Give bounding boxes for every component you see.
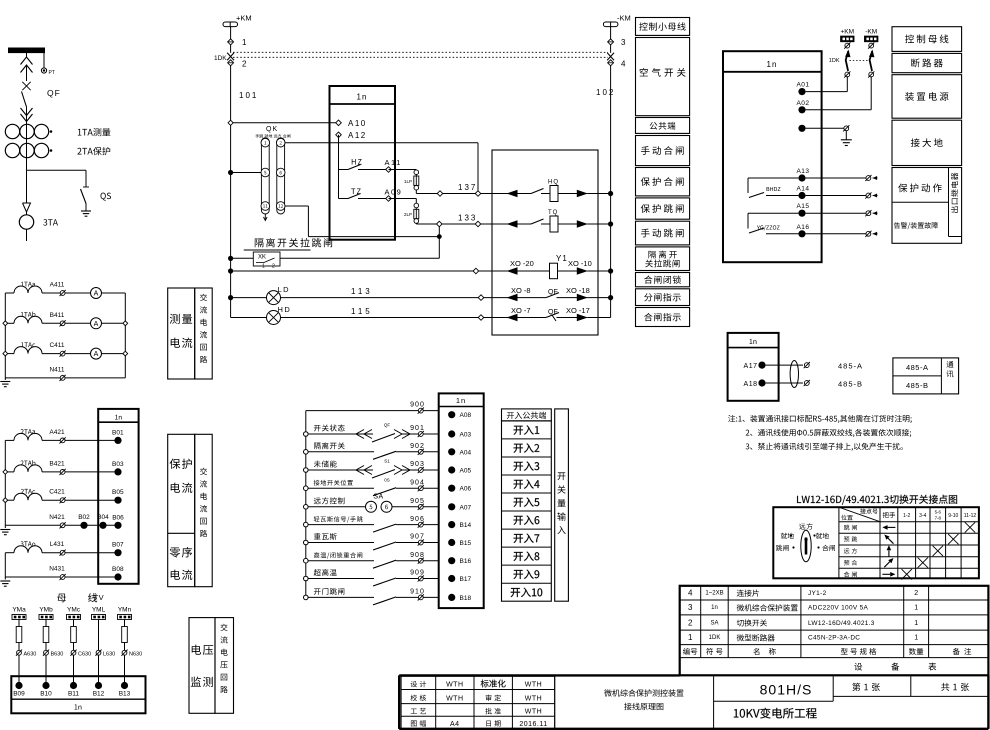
svg-text:907: 907 [410,534,425,541]
svg-text:XO -7: XO -7 [511,306,531,315]
svg-text:N630: N630 [129,652,142,658]
svg-text:1DK: 1DK [829,58,840,64]
svg-text:WTH: WTH [525,709,542,716]
svg-text:A18: A18 [744,381,758,388]
svg-text:QF: QF [548,309,558,316]
svg-text:Y1: Y1 [556,254,568,263]
svg-text:N431: N431 [49,566,65,573]
svg-text:2: 2 [688,618,693,627]
svg-text:SA: SA [710,620,718,626]
svg-text:A15: A15 [796,203,809,210]
svg-text:A14: A14 [796,186,809,193]
svg-text:A02: A02 [796,100,809,107]
svg-text:0S: 0S [384,478,390,483]
svg-text:B13: B13 [119,691,131,698]
svg-text:113: 113 [351,287,373,296]
svg-text:YML: YML [92,607,106,614]
svg-text:903: 903 [410,461,425,468]
svg-text:A05: A05 [460,468,472,475]
svg-text:2LP: 2LP [404,212,412,217]
svg-text:QF: QF [384,423,391,428]
svg-text:B17: B17 [460,576,472,583]
svg-text:3: 3 [621,38,626,47]
svg-text:B11: B11 [68,691,79,698]
svg-text:904: 904 [410,479,425,486]
svg-text:A411: A411 [50,282,65,289]
svg-text:485-B: 485-B [838,380,863,389]
svg-text:B04: B04 [97,514,109,521]
svg-text:N411: N411 [49,366,64,373]
svg-text:B15: B15 [460,540,472,547]
svg-text:1: 1 [688,633,693,642]
svg-text:1~2XB: 1~2XB [705,591,723,597]
svg-text:XO -10: XO -10 [568,259,592,268]
svg-text:+KM: +KM [841,29,855,36]
svg-text:QK: QK [266,126,278,133]
svg-text:115: 115 [351,307,373,316]
svg-text:A630: A630 [24,652,37,658]
svg-text:3: 3 [688,603,693,612]
svg-text:LW12-16D/49.4021.3: LW12-16D/49.4021.3 [808,620,875,627]
svg-text:PT: PT [49,70,55,76]
svg-text:1n: 1n [357,93,368,102]
svg-text:C630: C630 [78,652,91,658]
svg-text:902: 902 [410,443,425,450]
svg-text:A13: A13 [796,168,809,175]
svg-text:XO -18: XO -18 [566,286,590,295]
svg-text:B01: B01 [112,429,124,436]
svg-text:1: 1 [914,620,918,627]
svg-text:TV: TV [94,593,105,602]
svg-text:A03: A03 [460,432,472,439]
svg-text:485-A: 485-A [838,362,863,371]
svg-text:WTH: WTH [446,682,463,689]
svg-text:9-10: 9-10 [948,513,958,519]
svg-text:A: A [94,321,99,328]
svg-text:485-A: 485-A [906,363,929,372]
svg-text:JY1-2: JY1-2 [808,590,827,597]
svg-text:N421: N421 [49,514,65,521]
svg-text:7-8: 7-8 [935,516,942,521]
svg-text:HD: HD [278,305,292,314]
svg-text:1n: 1n [711,605,718,611]
svg-text:1: 1 [914,635,918,642]
svg-text:A11: A11 [385,158,402,167]
svg-text:2: 2 [914,590,918,597]
svg-text:B02: B02 [78,514,90,521]
svg-text:133: 133 [458,214,477,223]
svg-text:A421: A421 [49,429,65,436]
svg-text:A06: A06 [460,486,472,493]
svg-text:3-4: 3-4 [919,513,926,519]
svg-text:B06: B06 [112,515,124,522]
svg-text:YMn: YMn [118,607,132,614]
svg-text:QF: QF [548,289,558,296]
svg-text:102: 102 [596,88,615,97]
svg-text:XO -20: XO -20 [510,259,534,268]
svg-text:909: 909 [410,570,425,577]
svg-text:1DK: 1DK [709,635,721,641]
svg-text:ADC220V 100V 5A: ADC220V 100V 5A [808,605,869,612]
svg-text:11-12: 11-12 [964,513,977,519]
svg-text:1n: 1n [767,60,778,69]
svg-text:XO -8: XO -8 [511,286,531,295]
svg-text:XK: XK [258,255,266,261]
svg-text:101: 101 [239,91,258,100]
svg-text:YMa: YMa [12,607,26,614]
svg-text:B18: B18 [460,595,472,602]
svg-text:A4: A4 [450,721,460,728]
svg-text:B630: B630 [51,652,64,658]
svg-text:900: 900 [410,402,425,409]
svg-text:1: 1 [262,264,265,270]
svg-text:TQ: TQ [548,210,558,216]
svg-text:WTH: WTH [525,696,542,703]
svg-text:WTH: WTH [525,682,542,689]
svg-text:1: 1 [242,38,247,47]
svg-text:1LP: 1LP [404,179,412,184]
svg-text:C411: C411 [49,342,64,349]
svg-text:L431: L431 [50,541,65,548]
svg-text:SA: SA [373,493,383,500]
svg-text:5-6: 5-6 [935,510,942,515]
svg-text:XO -17: XO -17 [566,306,590,315]
svg-text:A12: A12 [348,131,367,140]
svg-text:B08: B08 [112,566,124,573]
svg-text:C421: C421 [49,489,65,496]
svg-text:B14: B14 [460,522,472,529]
svg-text:B421: B421 [49,460,65,467]
svg-text:905: 905 [410,498,425,505]
svg-text:-KM: -KM [617,14,631,23]
svg-text:906: 906 [410,516,425,523]
svg-text:LD: LD [278,285,291,294]
svg-text:HQ: HQ [548,180,559,186]
svg-text:1-2: 1-2 [903,513,910,519]
svg-text:801H/S: 801H/S [760,682,813,698]
svg-text:A07: A07 [460,504,472,511]
svg-text:2: 2 [242,60,247,69]
svg-text:YMc: YMc [67,607,81,614]
svg-text:1n: 1n [456,396,466,405]
svg-text:A10: A10 [348,119,367,128]
svg-text:+KM: +KM [236,14,252,23]
svg-text:L630: L630 [103,652,115,658]
svg-text:A08: A08 [460,412,472,419]
svg-text:B07: B07 [112,542,124,549]
svg-text:485-B: 485-B [906,381,929,390]
svg-text:A09: A09 [385,188,403,197]
svg-text:1DK: 1DK [214,55,227,62]
svg-text:B16: B16 [460,558,472,565]
svg-text:4: 4 [688,589,693,598]
svg-text:908: 908 [410,552,425,559]
svg-text:S1: S1 [384,459,390,464]
svg-text:2016.11: 2016.11 [519,721,547,728]
svg-text:B09: B09 [13,691,25,698]
svg-text:137: 137 [458,183,477,192]
svg-text:B411: B411 [50,312,65,319]
svg-text:A: A [94,351,99,358]
svg-text:A16: A16 [796,224,809,231]
svg-text:B05: B05 [112,489,124,496]
svg-text:A17: A17 [744,363,758,370]
svg-text:A01: A01 [796,82,809,89]
svg-text:B12: B12 [93,691,105,698]
svg-text:B10: B10 [40,691,52,698]
svg-text:B03: B03 [112,461,124,468]
svg-text:WTH: WTH [446,696,463,703]
svg-text:-KM: -KM [865,29,877,36]
svg-text:1: 1 [914,605,918,612]
svg-text:4: 4 [621,60,626,69]
svg-text:QF: QF [47,88,61,98]
svg-text:A04: A04 [460,449,472,456]
svg-text:C45N-2P-3A-DC: C45N-2P-3A-DC [808,635,860,642]
svg-text:A: A [94,291,99,298]
svg-text:910: 910 [410,589,425,596]
svg-text:YMb: YMb [39,607,53,614]
svg-text:901: 901 [410,425,425,432]
svg-text:2: 2 [272,264,275,270]
